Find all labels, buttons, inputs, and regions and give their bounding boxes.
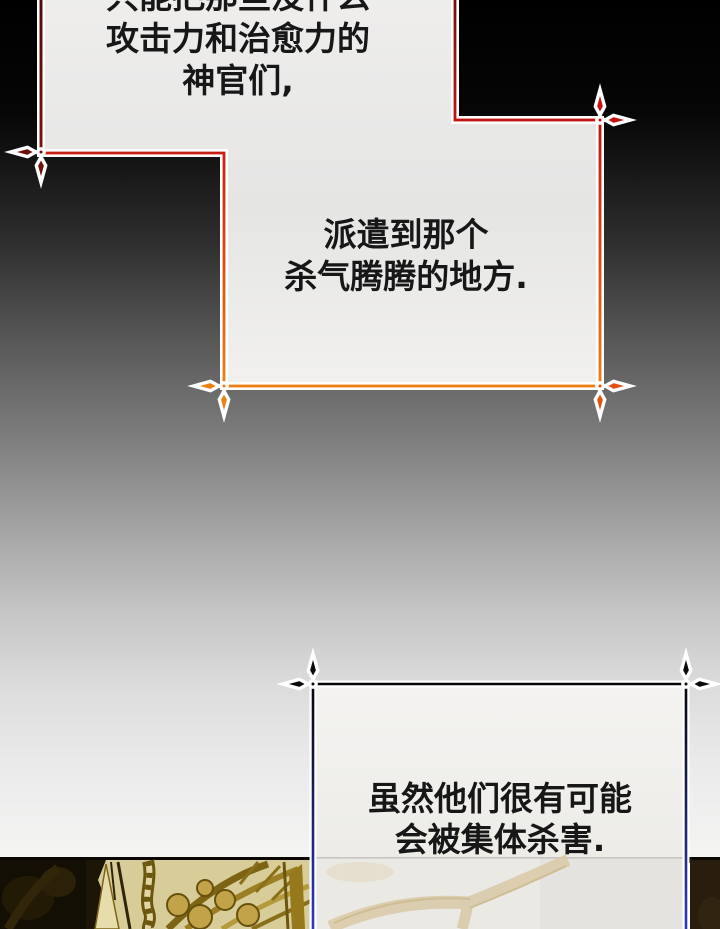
tree-branches-faint — [316, 857, 684, 929]
narration-line: 只能把那些没什么 — [42, 0, 434, 18]
narration-text-mid: 派遣到那个 杀气腾腾的地方. — [226, 214, 586, 298]
panel-dark-left — [0, 860, 90, 929]
corner-cross-ornament-icon — [194, 381, 229, 416]
narration-line: 虽然他们很有可能 — [316, 778, 684, 819]
narration-text-bottom: 虽然他们很有可能 会被集体杀害. — [316, 778, 684, 860]
narration-line: 会被集体杀害. — [316, 819, 684, 860]
narration-line: 派遣到那个 — [226, 214, 586, 256]
narration-text-top: 只能把那些没什么 攻击力和治愈力的 神官们, — [42, 0, 434, 102]
corner-cross-ornament-icon — [11, 147, 46, 182]
corner-cross-ornament-icon — [595, 381, 630, 416]
narration-line: 神官们, — [42, 60, 434, 102]
panel-dark-right — [690, 860, 720, 929]
narration-line: 攻击力和治愈力的 — [42, 18, 434, 60]
corner-cross-ornament-icon — [681, 654, 716, 689]
narration-line: 杀气腾腾的地方. — [226, 256, 586, 298]
comic-page: 只能把那些没什么 攻击力和治愈力的 神官们, 派遣到那个 杀气腾腾的地方. 虽然… — [0, 0, 720, 929]
foliage-gold-artwork — [86, 860, 314, 929]
corner-cross-ornament-icon — [595, 90, 630, 125]
corner-cross-ornament-icon — [283, 654, 318, 689]
